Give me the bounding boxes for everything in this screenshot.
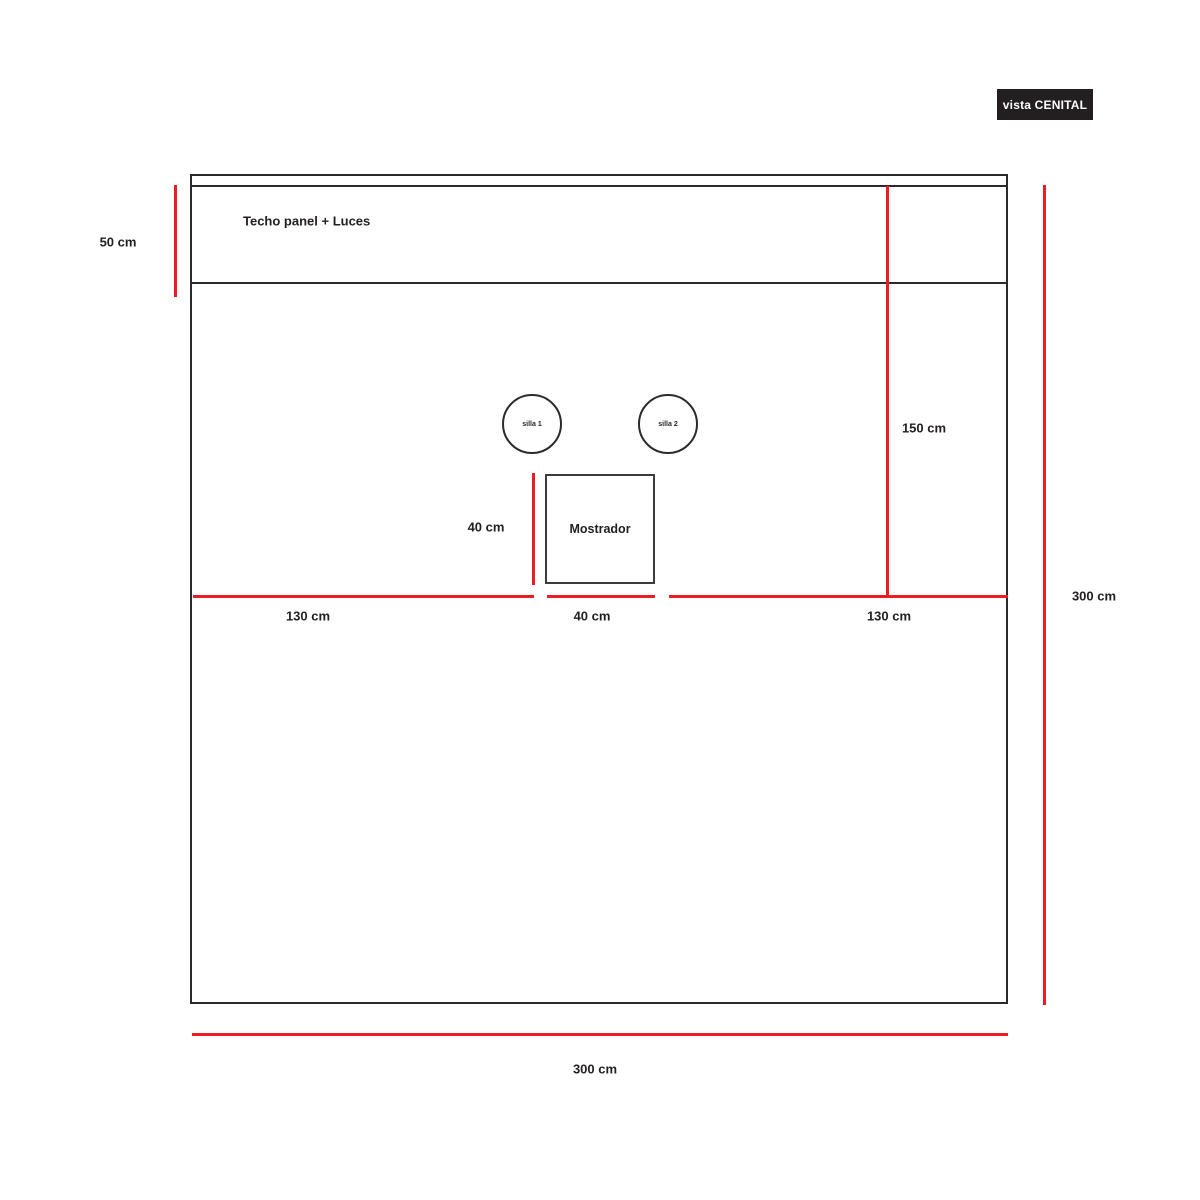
counter: Mostrador <box>545 474 655 584</box>
chair-2: silla 2 <box>638 394 698 454</box>
dimension-line-bottom-left <box>193 595 534 598</box>
dimension-line-right-total <box>1043 185 1046 1005</box>
view-badge-label: vista CENITAL <box>1003 98 1087 112</box>
dimension-label-right-total: 300 cm <box>1072 589 1116 604</box>
dimension-line-bottom-center <box>547 595 655 598</box>
dimension-line-bottom-right <box>669 595 1008 598</box>
dimension-label-counter-side: 40 cm <box>468 520 505 535</box>
dimension-line-ceiling-depth <box>174 185 177 297</box>
dimension-line-counter-side <box>532 473 535 585</box>
dimension-label-right-upper: 150 cm <box>902 421 946 436</box>
view-badge: vista CENITAL <box>997 89 1093 120</box>
chair-1-label: silla 1 <box>522 421 541 428</box>
dimension-line-bottom-total <box>192 1033 1008 1036</box>
dimension-line-right-upper <box>886 186 889 596</box>
dimension-label-ceiling-depth: 50 cm <box>100 235 137 250</box>
chair-2-label: silla 2 <box>658 421 677 428</box>
dimension-label-bottom-total: 300 cm <box>573 1062 617 1077</box>
chair-1: silla 1 <box>502 394 562 454</box>
counter-label: Mostrador <box>569 522 630 536</box>
dimension-label-bottom-left: 130 cm <box>286 609 330 624</box>
dimension-label-bottom-center: 40 cm <box>574 609 611 624</box>
dimension-label-bottom-right: 130 cm <box>867 609 911 624</box>
ceiling-panel-label: Techo panel + Luces <box>243 214 370 229</box>
